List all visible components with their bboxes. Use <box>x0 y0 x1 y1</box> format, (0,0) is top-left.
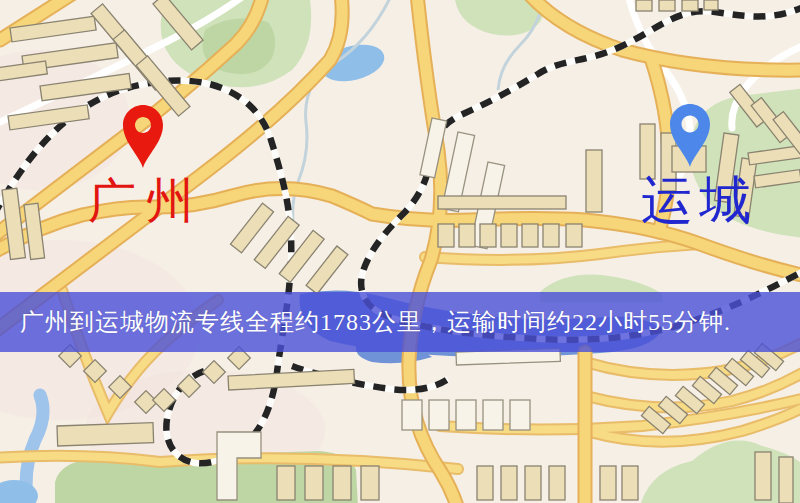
route-info-text: 广州到运城物流专线全程约1783公里，运输时间约22小时55分钟. <box>20 306 731 338</box>
map-canvas <box>0 0 800 503</box>
destination-city-label: 运城 <box>641 175 757 227</box>
map-viewport: 广州 运城 广州到运城物流专线全程约1783公里，运输时间约22小时55分钟. <box>0 0 800 503</box>
origin-city-label: 广州 <box>88 177 204 225</box>
route-info-banner: 广州到运城物流专线全程约1783公里，运输时间约22小时55分钟. <box>0 292 800 352</box>
